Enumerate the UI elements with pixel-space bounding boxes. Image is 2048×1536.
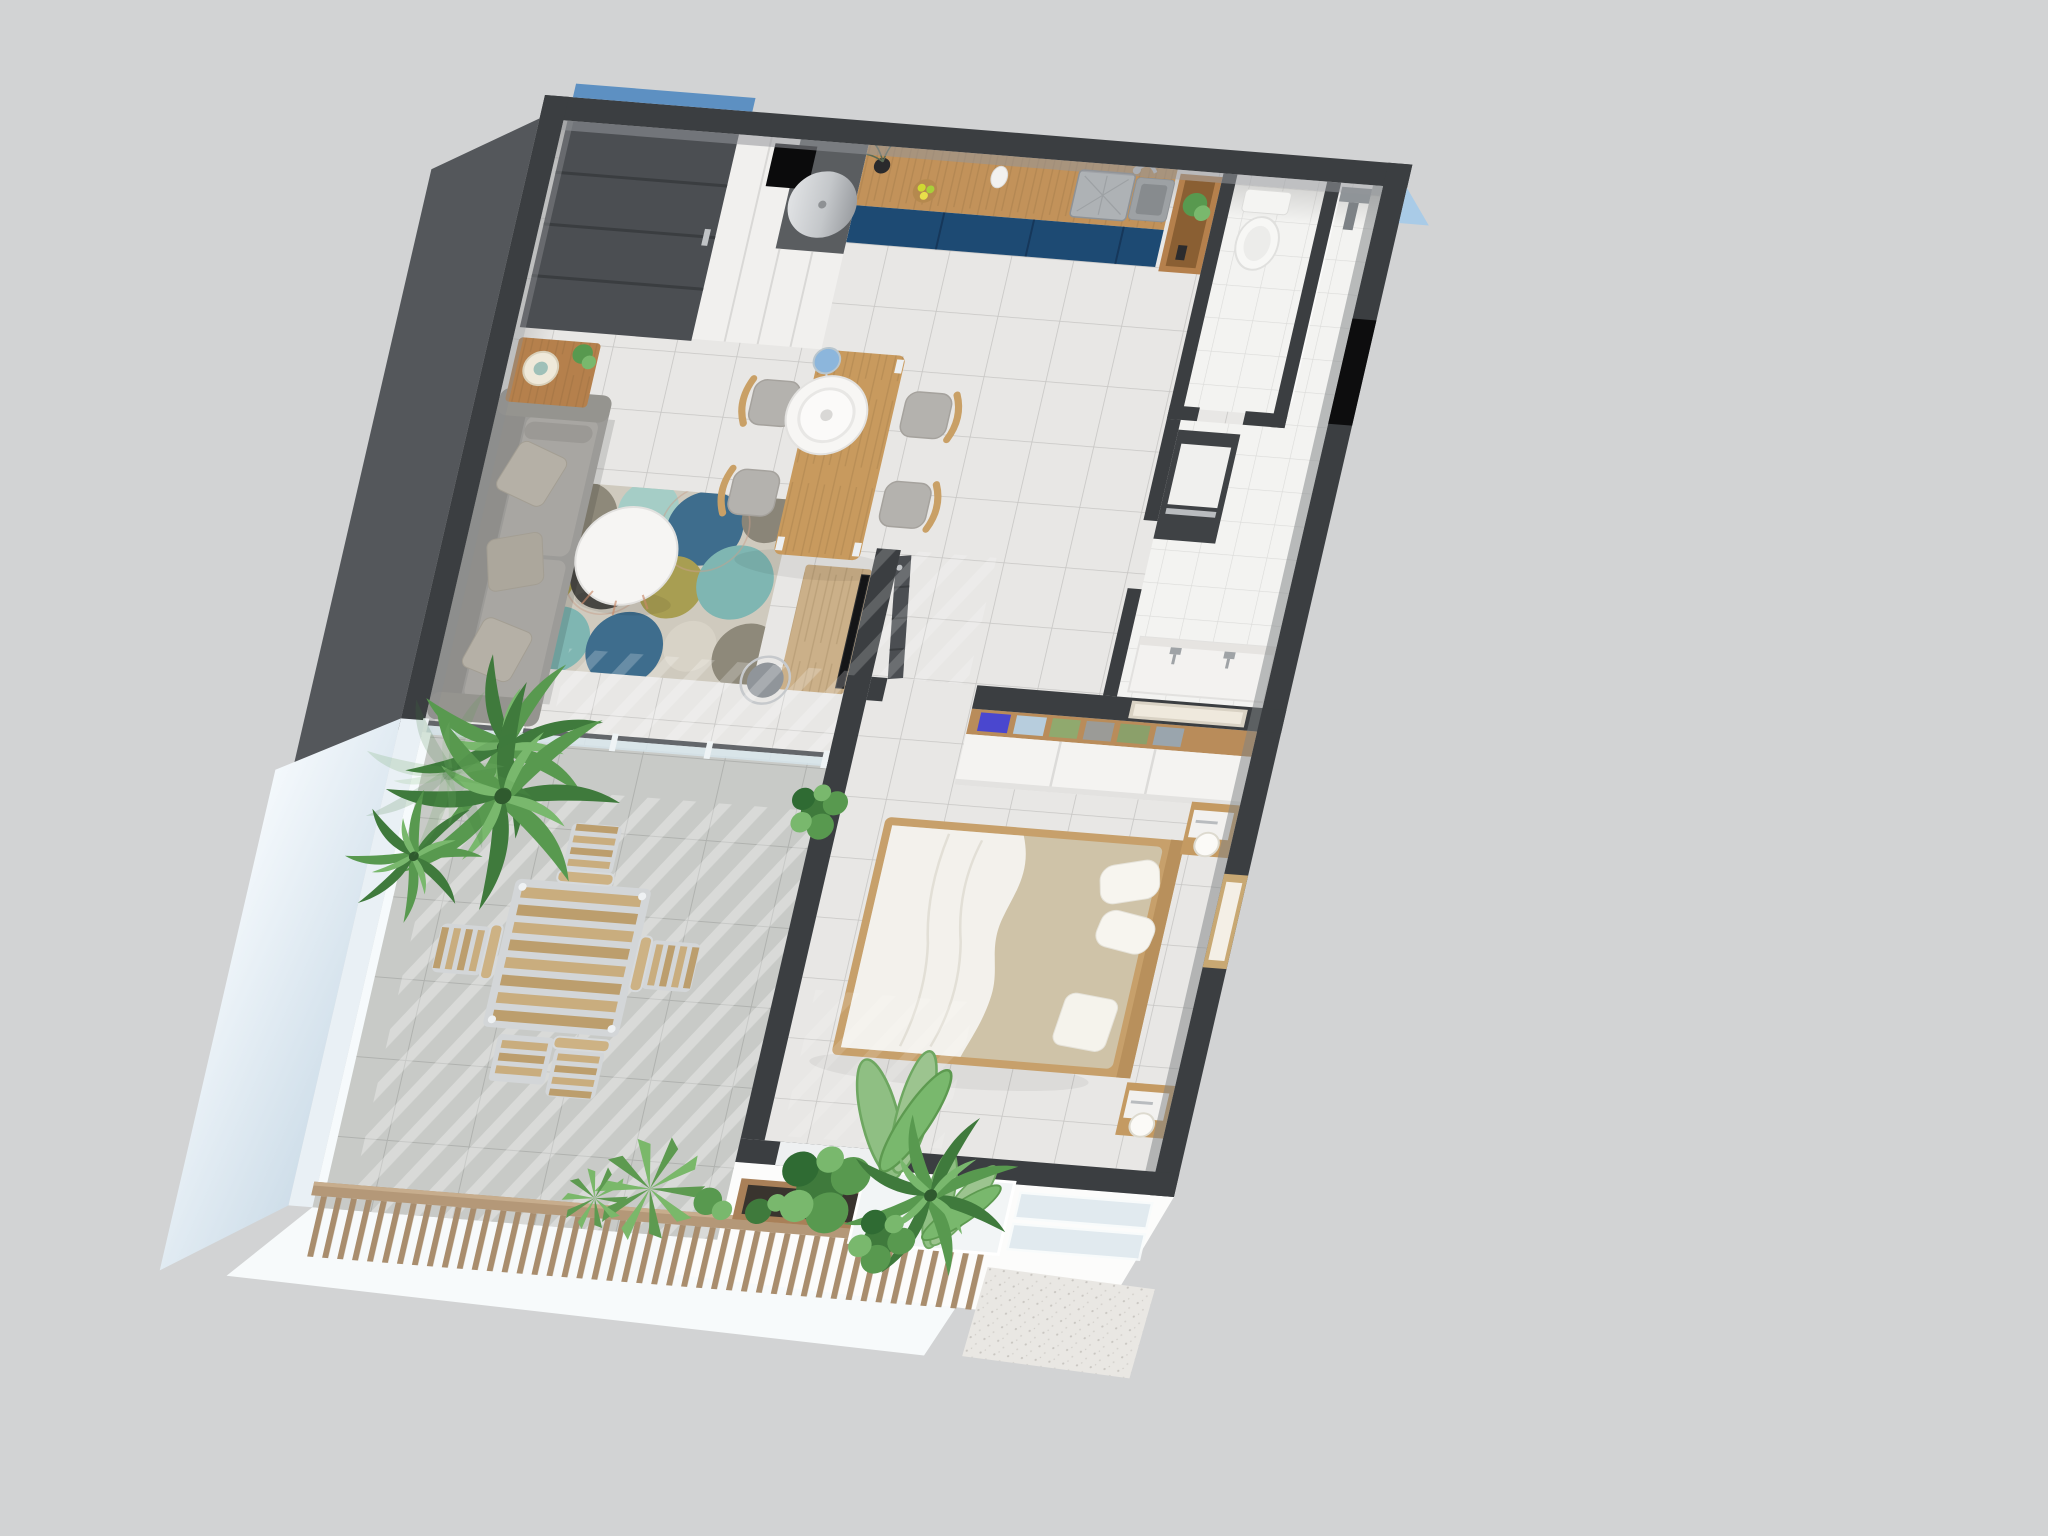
slat-stool xyxy=(488,1034,555,1085)
outdoor-chair xyxy=(430,920,503,979)
room-entry: Entry zone — dark paneled front door and… xyxy=(520,121,871,352)
folded-clothes xyxy=(1049,718,1081,739)
throw-pillow xyxy=(487,531,544,592)
folded-clothes xyxy=(1013,715,1047,736)
folded-clothes xyxy=(1152,726,1184,747)
folded-clothes xyxy=(1083,721,1115,742)
folded-clothes xyxy=(1117,724,1151,745)
wall-tap xyxy=(1169,647,1182,655)
folded-clothes xyxy=(977,712,1011,733)
outdoor-chair xyxy=(629,936,702,995)
vanity xyxy=(1128,637,1276,702)
floorplan-scene: 3D floor plan render — one-bedroom apart… xyxy=(0,0,2048,1536)
wall-tap xyxy=(1223,652,1236,660)
